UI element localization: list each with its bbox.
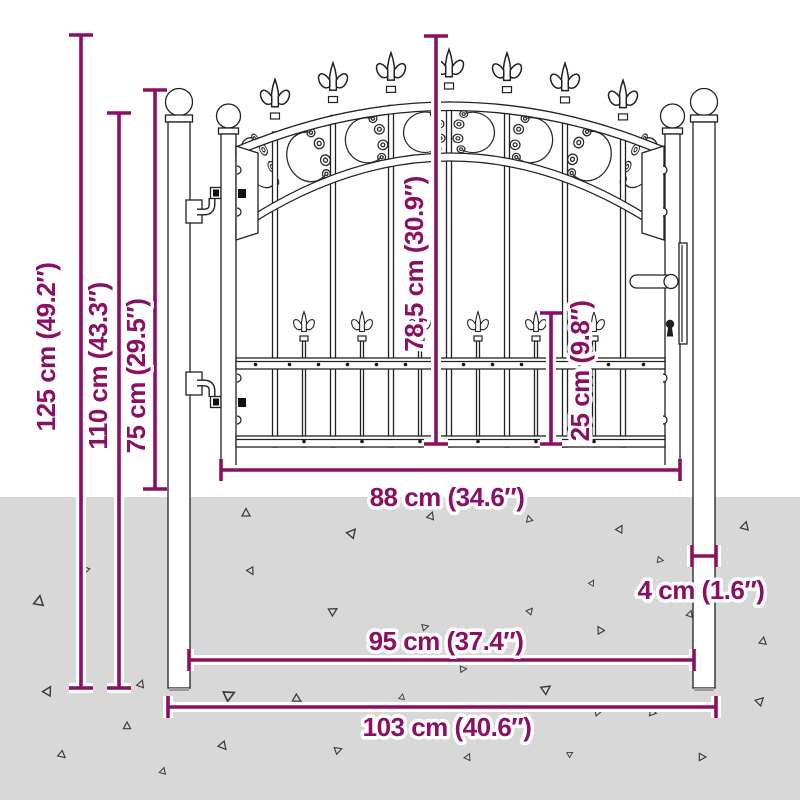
arch-right-plate (642, 146, 664, 240)
dim-gate-leaf-height: 78,5 cm (30.9″) (399, 36, 448, 444)
dim-overall-height-label: 125 cm (49.2″) (31, 263, 61, 432)
dim-overall-width-label: 103 cm (40.6″) (363, 712, 532, 742)
dim-post-width-label: 4 cm (1.6″) (638, 575, 765, 605)
dim-gate-leaf-height-label: 78,5 cm (30.9″) (399, 176, 429, 352)
lower-hinge (186, 372, 221, 408)
gate-leaf (217, 49, 688, 470)
dim-above-ground-height-label: 75 cm (29.5″) (121, 299, 151, 454)
dim-spear-section-height: 25 cm (9.8″) (540, 301, 595, 444)
dim-above-ground-height: 75 cm (29.5″) (121, 90, 167, 489)
garden-gate-dimension-diagram: 125 cm (49.2″) 110 cm (43.3″) 75 cm (29.… (0, 0, 800, 800)
gate-lock (630, 243, 687, 344)
dim-inner-span-label: 95 cm (37.4″) (369, 626, 524, 656)
upper-hinge (186, 188, 221, 224)
dim-gate-leaf-width-label: 88 cm (34.6″) (370, 482, 525, 512)
dim-post-height-label: 110 cm (43.3″) (83, 282, 113, 449)
dim-spear-section-height-label: 25 cm (9.8″) (565, 301, 595, 442)
